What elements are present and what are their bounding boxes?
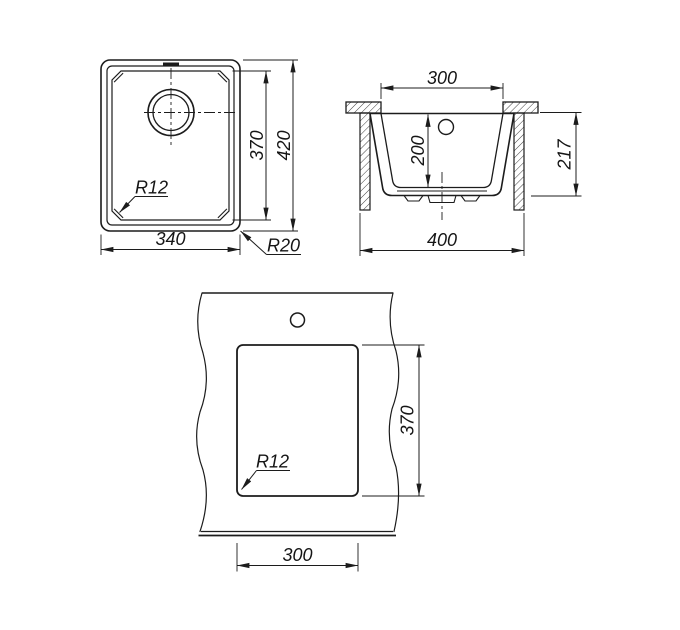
label-outer-radius: R20 — [267, 236, 300, 256]
countertop-section-left — [346, 102, 381, 113]
support-panel-right — [514, 113, 524, 210]
cutout-opening-outline — [237, 345, 358, 496]
mounting-clip-right — [461, 196, 480, 202]
overflow-hole-circle — [439, 120, 454, 135]
label-cutout-radius: R12 — [256, 452, 289, 472]
sink-technical-drawing-page: 370 420 340 R12 R20 — [0, 0, 680, 630]
dim-label-opening-width: 300 — [427, 68, 457, 88]
bowl-outer-shell — [370, 114, 514, 196]
dim-label-cutout-width: 300 — [282, 545, 312, 565]
mounting-clip-left — [404, 196, 423, 202]
countertop-section-right — [503, 102, 538, 113]
support-panel-left — [360, 113, 370, 210]
faucet-hole-circle — [291, 313, 305, 327]
leader-outer-radius — [241, 231, 267, 255]
sink-outer-outline — [101, 60, 240, 231]
dim-label-inner-height: 370 — [247, 130, 267, 160]
dim-label-cutout-height: 370 — [398, 405, 418, 435]
countertop-break-line-left — [197, 293, 207, 532]
dim-label-bowl-depth: 200 — [408, 135, 428, 166]
top-view: 370 420 340 R12 R20 — [101, 60, 301, 256]
dim-label-width: 340 — [155, 229, 185, 249]
cutout-view: 370 R12 300 — [197, 293, 425, 572]
dim-label-base-width: 400 — [427, 230, 457, 250]
technical-drawing-canvas: 370 420 340 R12 R20 — [0, 0, 680, 630]
dim-label-sink-height: 217 — [555, 139, 575, 171]
overflow-slot — [163, 63, 179, 67]
dim-label-outer-height: 420 — [274, 130, 294, 160]
label-inner-radius: R12 — [135, 178, 168, 198]
section-view: 300 200 400 217 — [346, 68, 582, 256]
